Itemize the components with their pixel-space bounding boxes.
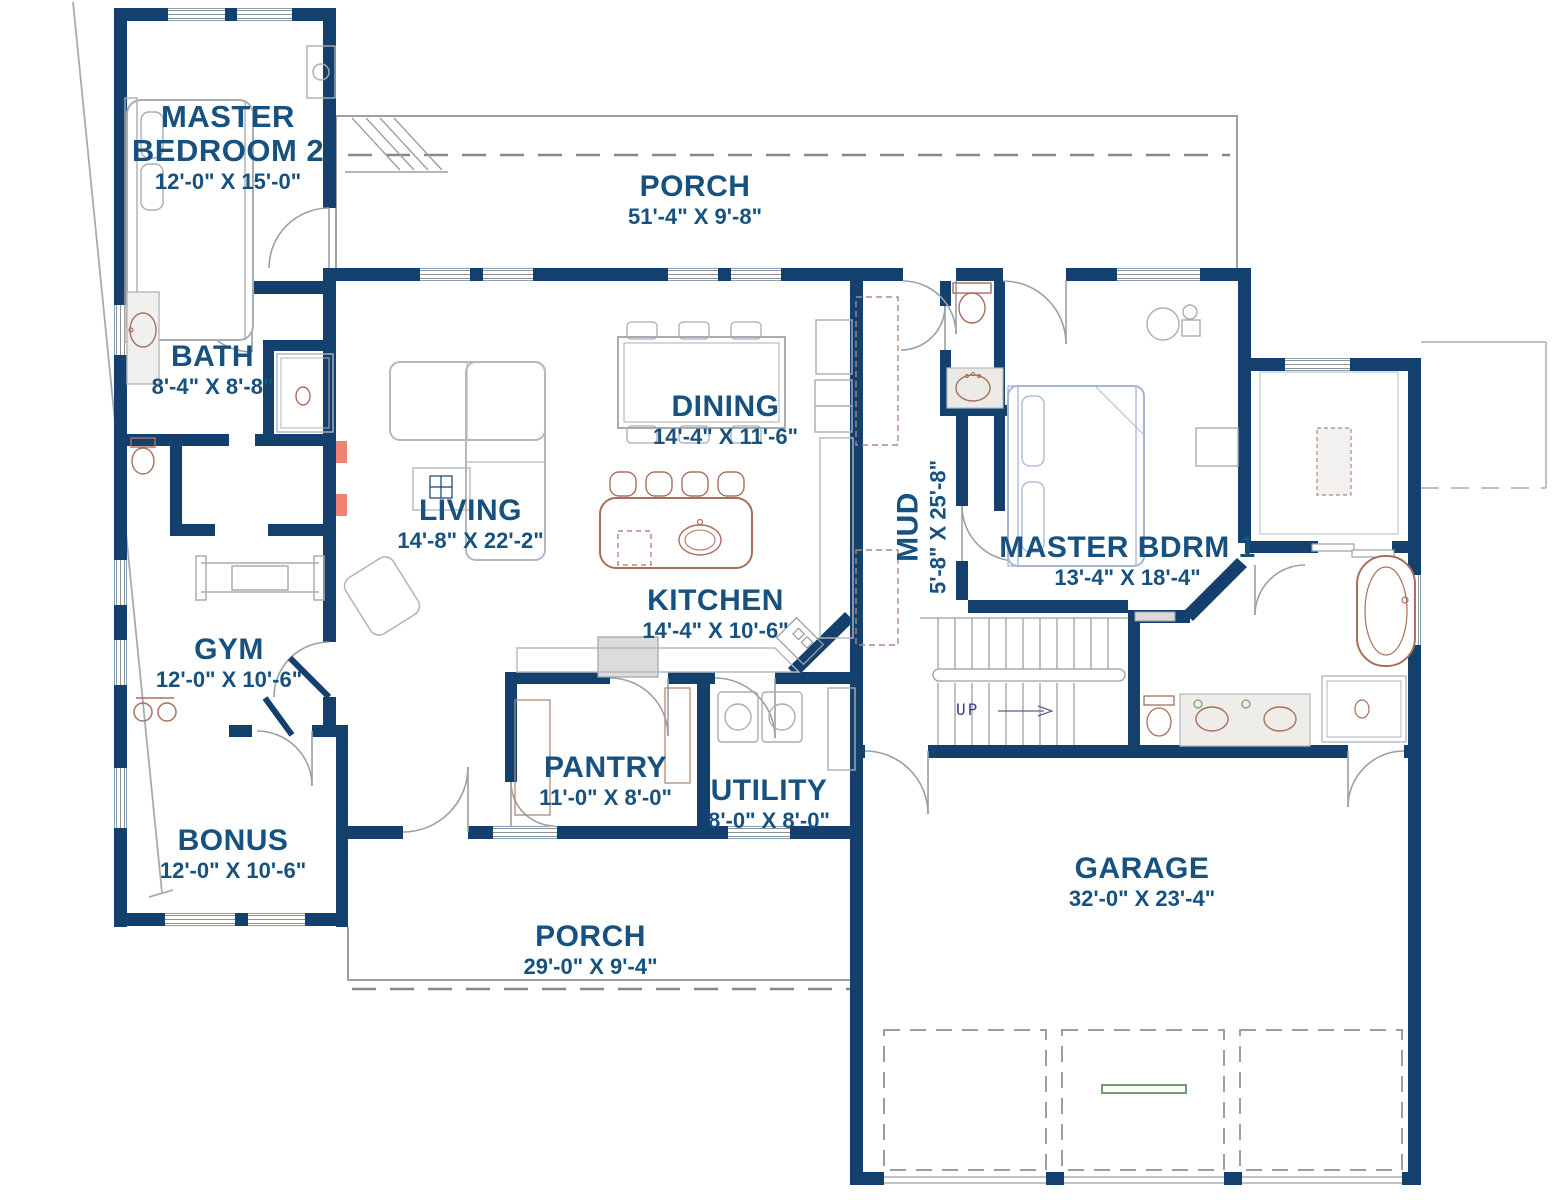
floor-plan: MASTER BEDROOM 2 12'-0" X 15'-0" PORCH 5… <box>0 0 1553 1200</box>
pantry-shelves <box>515 688 690 815</box>
fireplace-accents <box>336 441 347 516</box>
room-label-mud: MUD 5'-8" X 25'-8" <box>893 460 950 594</box>
exercise-chair-icon <box>1147 305 1200 340</box>
walls <box>114 8 1421 1185</box>
hutch-fridge <box>815 320 852 432</box>
floor-plan-drawing <box>0 0 1553 1200</box>
porch-top-outline <box>336 116 1237 281</box>
porch-steps-hatch <box>345 118 448 172</box>
garage-floor-marker <box>1102 1085 1186 1093</box>
dining-chairs <box>627 322 761 443</box>
side-table <box>413 468 470 510</box>
dresser <box>1196 428 1238 466</box>
porch-bottom-outline <box>348 927 855 989</box>
stairs <box>920 618 1128 745</box>
master-closet <box>1260 372 1398 557</box>
sofa-sectional <box>390 362 545 560</box>
dining-table <box>618 322 785 443</box>
cased-opening <box>1135 612 1175 621</box>
master-bath <box>1144 556 1415 746</box>
kitchen-island <box>600 472 752 568</box>
room-name: MUD <box>893 460 925 594</box>
range <box>598 637 658 677</box>
room-dims: 5'-8" X 25'-8" <box>926 460 949 594</box>
stairs-up-label: UP <box>956 700 979 719</box>
bed-master-1 <box>1008 386 1144 566</box>
garage-bays <box>884 1030 1402 1183</box>
utility-appliances <box>718 688 855 770</box>
kitchen <box>517 438 853 677</box>
bath-vanity <box>127 292 159 384</box>
windows <box>115 9 1421 926</box>
patio-outline <box>1421 342 1546 488</box>
furniture <box>125 46 1415 815</box>
island-stools <box>610 472 744 496</box>
garage-door-lines <box>884 1177 1402 1183</box>
armchair <box>341 553 423 639</box>
gym-equipment <box>134 556 324 721</box>
